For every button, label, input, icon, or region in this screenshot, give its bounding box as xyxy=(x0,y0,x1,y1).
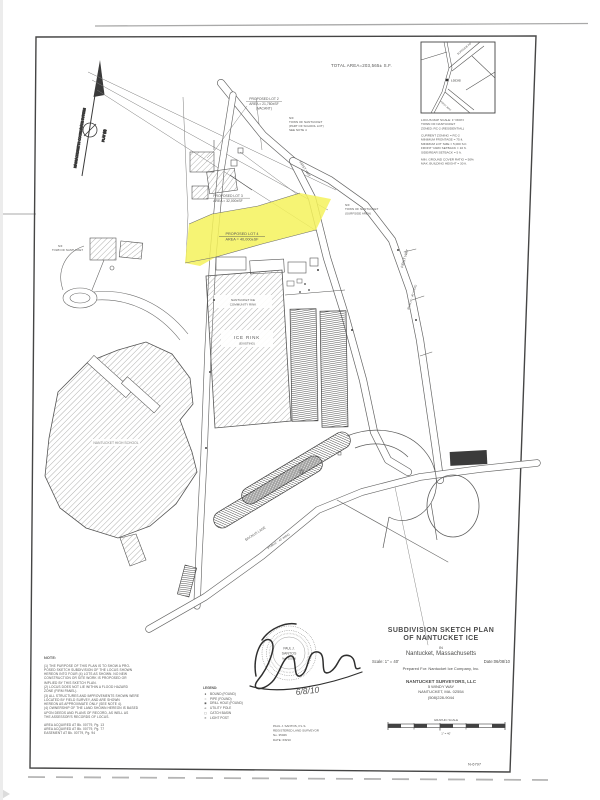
nf-top-line: SEE NOTE 4 xyxy=(289,128,307,132)
lot2-line: (VACANT) xyxy=(256,107,272,111)
certification-line: REGISTERED LAND SURVEYOR xyxy=(273,729,320,733)
legend-label: LIGHT POST xyxy=(210,716,229,721)
deed-ref-line: EASEMENT AT Bk. 00779, Pg. 94 xyxy=(44,731,182,735)
lot2-line: PROPOSED LOT 2 xyxy=(249,97,279,101)
graphic-scale-label: GRAPHIC SCALE xyxy=(434,718,458,722)
light-post-symbol: ✕ xyxy=(203,716,208,721)
lot4-highlight xyxy=(185,193,331,266)
lot3-line: PROPOSED LOT 3 xyxy=(213,194,243,198)
outbuildings xyxy=(90,238,143,270)
north-arrow: MASSACHUSETTS COORDINATE SYSTEM PLAT (M) xyxy=(73,60,107,176)
signature xyxy=(250,624,362,690)
stadium-strips xyxy=(210,429,353,531)
certification-line: No. 35026 xyxy=(273,733,287,737)
legend-title: LEGEND: xyxy=(203,686,243,691)
nf-right-line: (SURFSIDE AREA) xyxy=(345,211,371,215)
dark-building xyxy=(450,450,488,466)
plan-title-line1: SUBDIVISION SKETCH PLAN xyxy=(362,627,520,634)
nf-left-label: N/F TOWN OF NANTUCKET xyxy=(52,244,83,252)
plan-title-line2: OF NANTUCKET ICE xyxy=(362,635,520,642)
rink-label: ICE RINK xyxy=(234,335,260,340)
locus-zoning-text: LOCUS MAP SCALE: 1"=600'± TOWN OF NANTUC… xyxy=(421,118,474,166)
rink-top-line: NANTUCKET ICE xyxy=(231,298,255,302)
certification-block: PAUL J. SANTOS, P.L.S. REGISTERED LAND S… xyxy=(273,724,320,742)
school-label: NANTUCKET HIGH SCHOOL xyxy=(93,441,138,445)
lot3-line: AREA = 32,000±SF xyxy=(213,199,242,203)
legend-block: LEGEND: ● BOUND (FOUND) ○ PIPE (FOUND) ◉… xyxy=(203,686,243,721)
surveyor-seal: PAUL J. SANTOS No. 35026 xyxy=(262,626,316,680)
lot4-line: PROPOSED LOT 4 xyxy=(225,232,258,236)
lot2-line: AREA = 21,780±SF xyxy=(249,102,278,106)
firm-phone: (508)228-9044 xyxy=(362,695,520,701)
scale-bar: GRAPHIC SCALE 1" = 40' xyxy=(388,718,505,736)
locus-marker-label: LOCUS xyxy=(451,79,461,83)
signature-date: 6/8/10 xyxy=(295,685,320,697)
scanned-plan-sheet: MASSACHUSETTS COORDINATE SYSTEM PLAT (M)… xyxy=(0,0,600,800)
note-line: THE ASSESSOR'S RECORDS OF LOCUS. xyxy=(44,715,182,719)
rink-building: NANTUCKET ICE COMMUNITY RINK ICE RINK (E… xyxy=(206,270,291,428)
school-driveway xyxy=(61,246,188,340)
locus-line: MAX. BUILDING HEIGHT = 30 ft. xyxy=(421,162,467,166)
title-in: IN xyxy=(362,646,520,650)
lot4-label: PROPOSED LOT 4 AREA = 40,000±SF xyxy=(219,232,265,242)
lot3-label: PROPOSED LOT 3 AREA = 32,000±SF xyxy=(206,194,250,203)
certification-line: PAUL J. SANTOS, P.L.S. xyxy=(273,724,306,728)
rink-sub-label: (EXISTING) xyxy=(239,342,255,346)
nf-left-line: TOWN OF NANTUCKET xyxy=(52,248,83,252)
rink-top-line: COMMUNITY RINK xyxy=(230,303,256,307)
court-strips xyxy=(290,309,348,427)
nf-top-label: N/F TOWN OF NANTUCKET (PART OF SCHOOL LO… xyxy=(289,116,324,132)
junction-structure xyxy=(177,565,196,597)
notes-title: NOTE: xyxy=(44,656,182,661)
notes-block: NOTE: (1) THE PURPOSE OF THIS PLAN IS TO… xyxy=(44,656,182,736)
title-block: SUBDIVISION SKETCH PLAN OF NANTUCKET ICE… xyxy=(362,627,520,700)
road-bottom-label: BACKUS LANE xyxy=(244,525,267,542)
locus-line: SIDE/REAR SETBACK = 5 ft. xyxy=(421,150,462,154)
title-prepared-for: Prepared For: Nantucket Ice Company, Inc… xyxy=(362,666,520,671)
total-area-label: TOTAL AREA=203,565± S.F. xyxy=(331,63,392,68)
locus-inset-map: SURFSIDE RD FIRST WAY LOCUS xyxy=(421,41,495,113)
certification-line: DATE: 6/8/10 xyxy=(273,738,291,742)
title-date: Date:06/08/10 xyxy=(484,659,510,664)
scale-note-label: 1" = 40' xyxy=(441,732,451,736)
lot4-line: AREA = 40,000±SF xyxy=(225,238,259,242)
legend-item: ✕ LIGHT POST xyxy=(203,716,243,721)
title-town: Nantucket, Massachusetts xyxy=(362,651,520,657)
seal-name-bottom: SANTOS xyxy=(282,652,297,656)
school-building: NANTUCKET HIGH SCHOOL xyxy=(45,342,197,566)
plat-label: PLAT (M) xyxy=(101,129,107,142)
title-scale: Scale: 1" = 40' xyxy=(372,659,399,664)
seal-name-top: PAUL J. xyxy=(283,647,294,651)
plan-number: N-6797 xyxy=(468,762,482,767)
locus-line: ZONED: RC-2 (RESIDENTIAL) xyxy=(421,126,464,130)
